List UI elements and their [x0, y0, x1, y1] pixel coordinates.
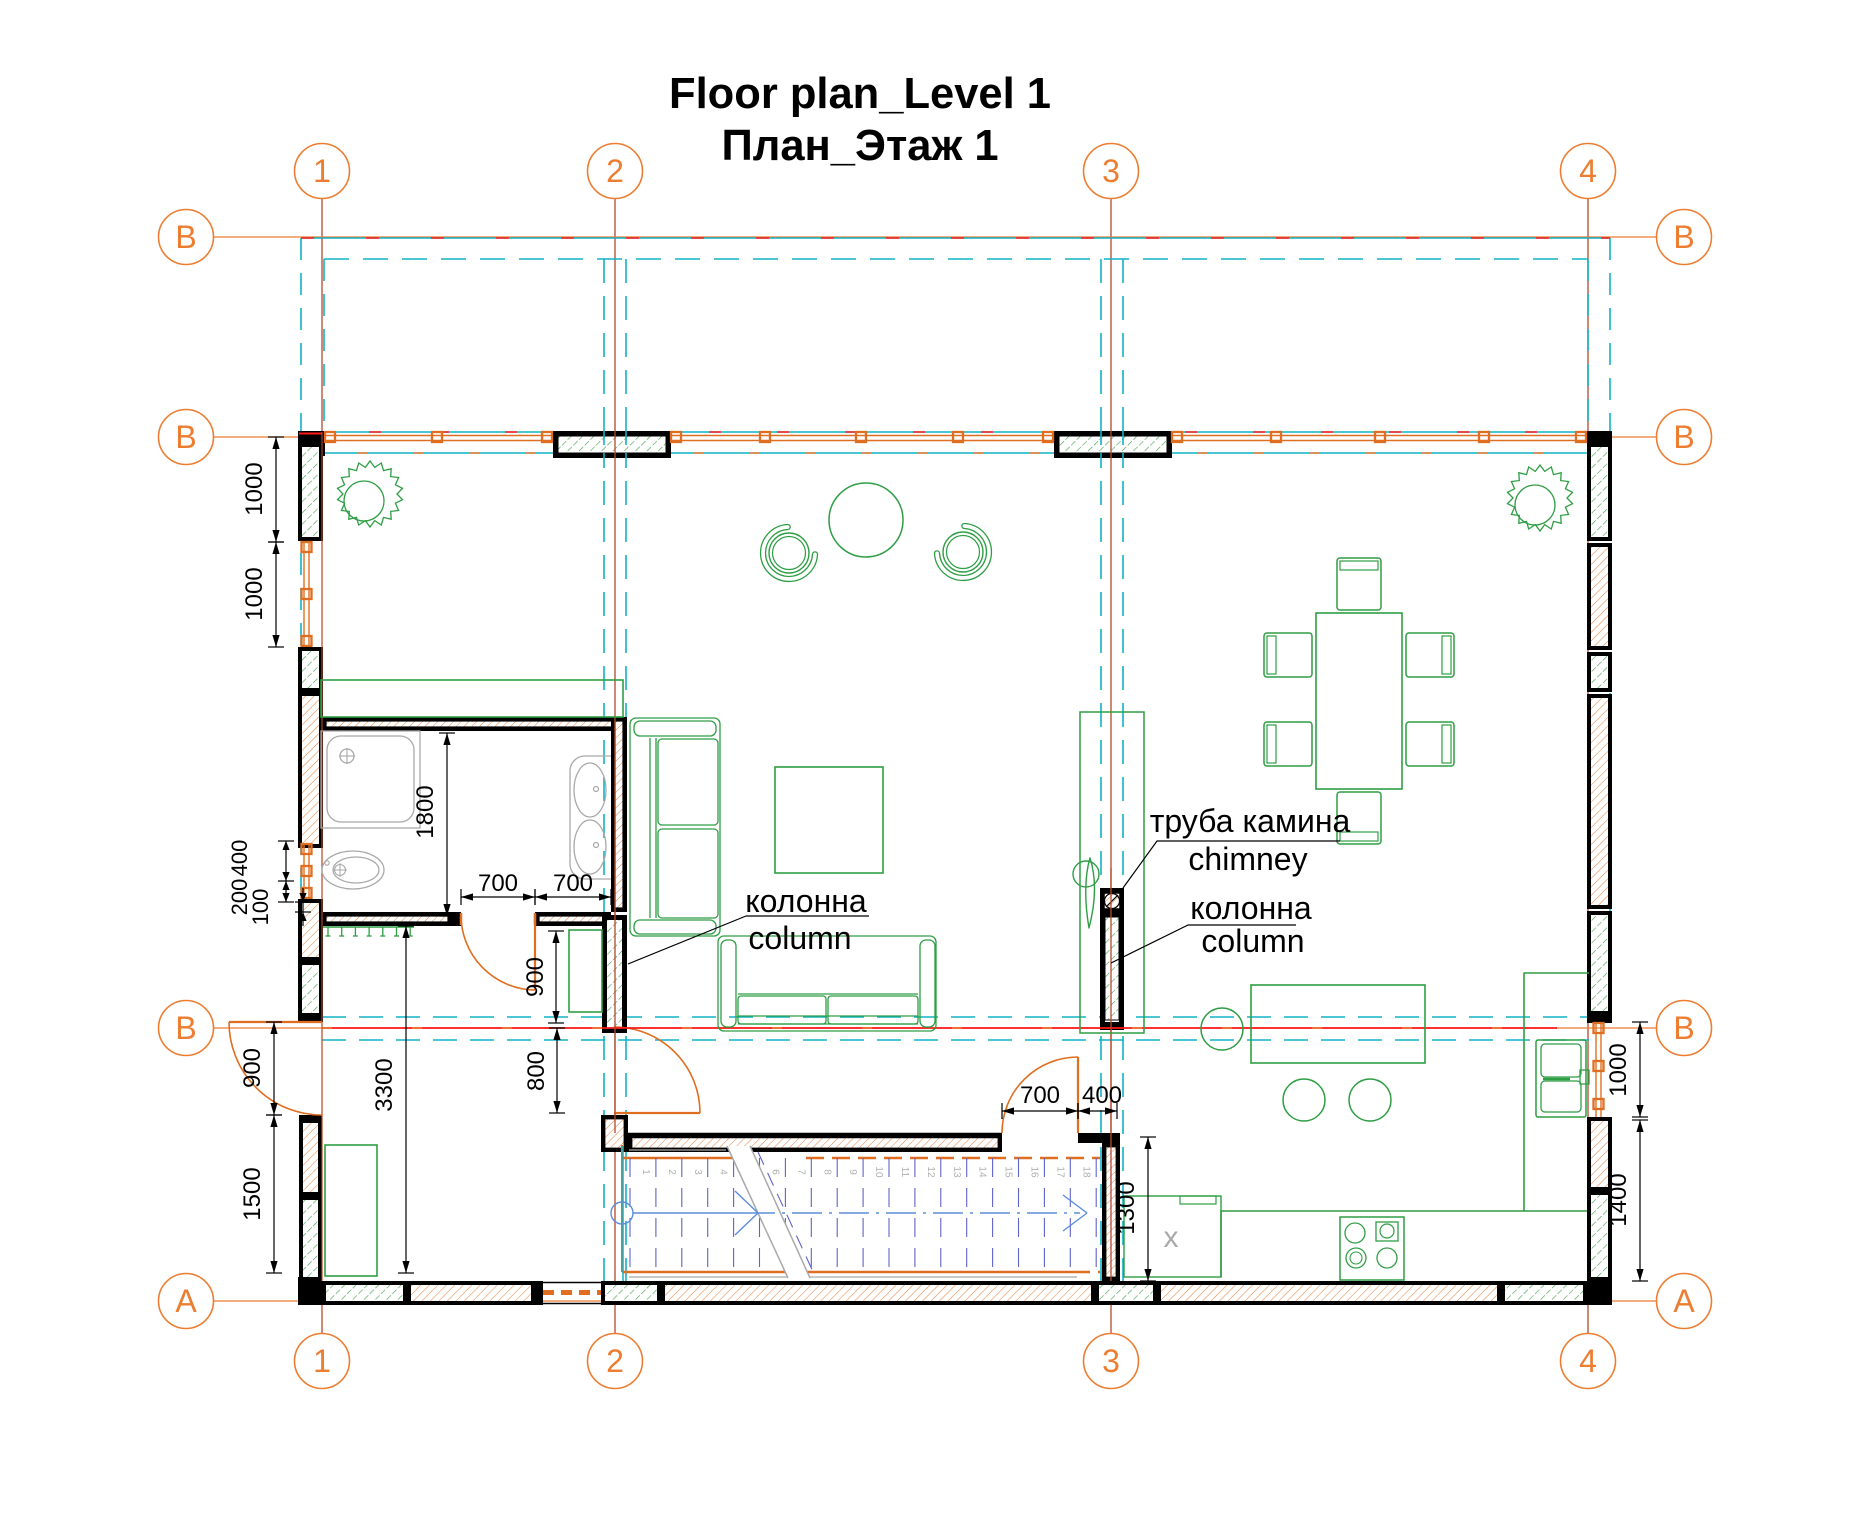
svg-text:1: 1 [313, 1343, 331, 1379]
svg-text:1800: 1800 [412, 785, 439, 838]
svg-text:A: A [175, 1283, 197, 1319]
svg-text:700: 700 [553, 870, 593, 897]
svg-text:колонна: колонна [1190, 890, 1312, 926]
svg-text:column: column [748, 920, 851, 956]
svg-text:7: 7 [795, 1169, 806, 1175]
svg-text:3: 3 [692, 1169, 703, 1175]
svg-text:B: B [1673, 1010, 1694, 1046]
svg-text:1000: 1000 [1605, 1043, 1632, 1096]
svg-text:Floor plan_Level 1: Floor plan_Level 1 [669, 70, 1051, 118]
svg-text:1000: 1000 [241, 567, 268, 620]
svg-text:B: B [1673, 419, 1694, 455]
svg-text:4: 4 [1579, 1343, 1597, 1379]
svg-text:17: 17 [1054, 1166, 1065, 1178]
svg-text:B: B [175, 1010, 196, 1046]
svg-text:1400: 1400 [1605, 1173, 1632, 1226]
svg-text:400: 400 [1082, 1082, 1122, 1109]
svg-text:16: 16 [1029, 1166, 1040, 1178]
svg-text:700: 700 [478, 870, 518, 897]
svg-text:4: 4 [1579, 153, 1597, 189]
svg-text:колонна: колонна [745, 883, 867, 919]
svg-text:900: 900 [522, 957, 549, 997]
svg-text:1000: 1000 [241, 462, 268, 515]
svg-text:11: 11 [899, 1167, 910, 1178]
svg-text:800: 800 [523, 1051, 550, 1091]
svg-text:3300: 3300 [371, 1058, 398, 1111]
svg-text:1: 1 [313, 153, 331, 189]
svg-text:chimney: chimney [1188, 841, 1307, 877]
svg-text:700: 700 [1020, 1082, 1060, 1109]
svg-text:column: column [1201, 923, 1304, 959]
svg-text:400: 400 [227, 840, 252, 877]
svg-text:B: B [1673, 219, 1694, 255]
svg-text:13: 13 [951, 1166, 962, 1178]
svg-text:A: A [1673, 1283, 1695, 1319]
svg-text:14: 14 [977, 1166, 988, 1178]
svg-text:12: 12 [925, 1166, 936, 1178]
svg-text:8: 8 [821, 1169, 832, 1175]
svg-text:3: 3 [1102, 153, 1120, 189]
svg-text:10: 10 [873, 1166, 884, 1178]
svg-text:B: B [175, 419, 196, 455]
svg-text:900: 900 [239, 1048, 266, 1088]
svg-text:4: 4 [718, 1169, 729, 1175]
svg-text:9: 9 [847, 1169, 858, 1175]
svg-text:6: 6 [770, 1169, 781, 1175]
svg-text:труба камина: труба камина [1150, 803, 1351, 839]
svg-text:18: 18 [1080, 1166, 1091, 1178]
svg-text:План_Этаж 1: План_Этаж 1 [721, 122, 998, 170]
svg-text:100: 100 [248, 889, 273, 926]
svg-text:x: x [1164, 1221, 1179, 1254]
svg-text:1300: 1300 [1113, 1181, 1140, 1234]
svg-text:1: 1 [640, 1169, 651, 1175]
svg-text:2: 2 [606, 1343, 624, 1379]
svg-text:3: 3 [1102, 1343, 1120, 1379]
svg-text:2: 2 [606, 153, 624, 189]
svg-text:15: 15 [1003, 1166, 1014, 1178]
svg-text:B: B [175, 219, 196, 255]
svg-text:2: 2 [666, 1169, 677, 1175]
svg-text:1500: 1500 [239, 1167, 266, 1220]
